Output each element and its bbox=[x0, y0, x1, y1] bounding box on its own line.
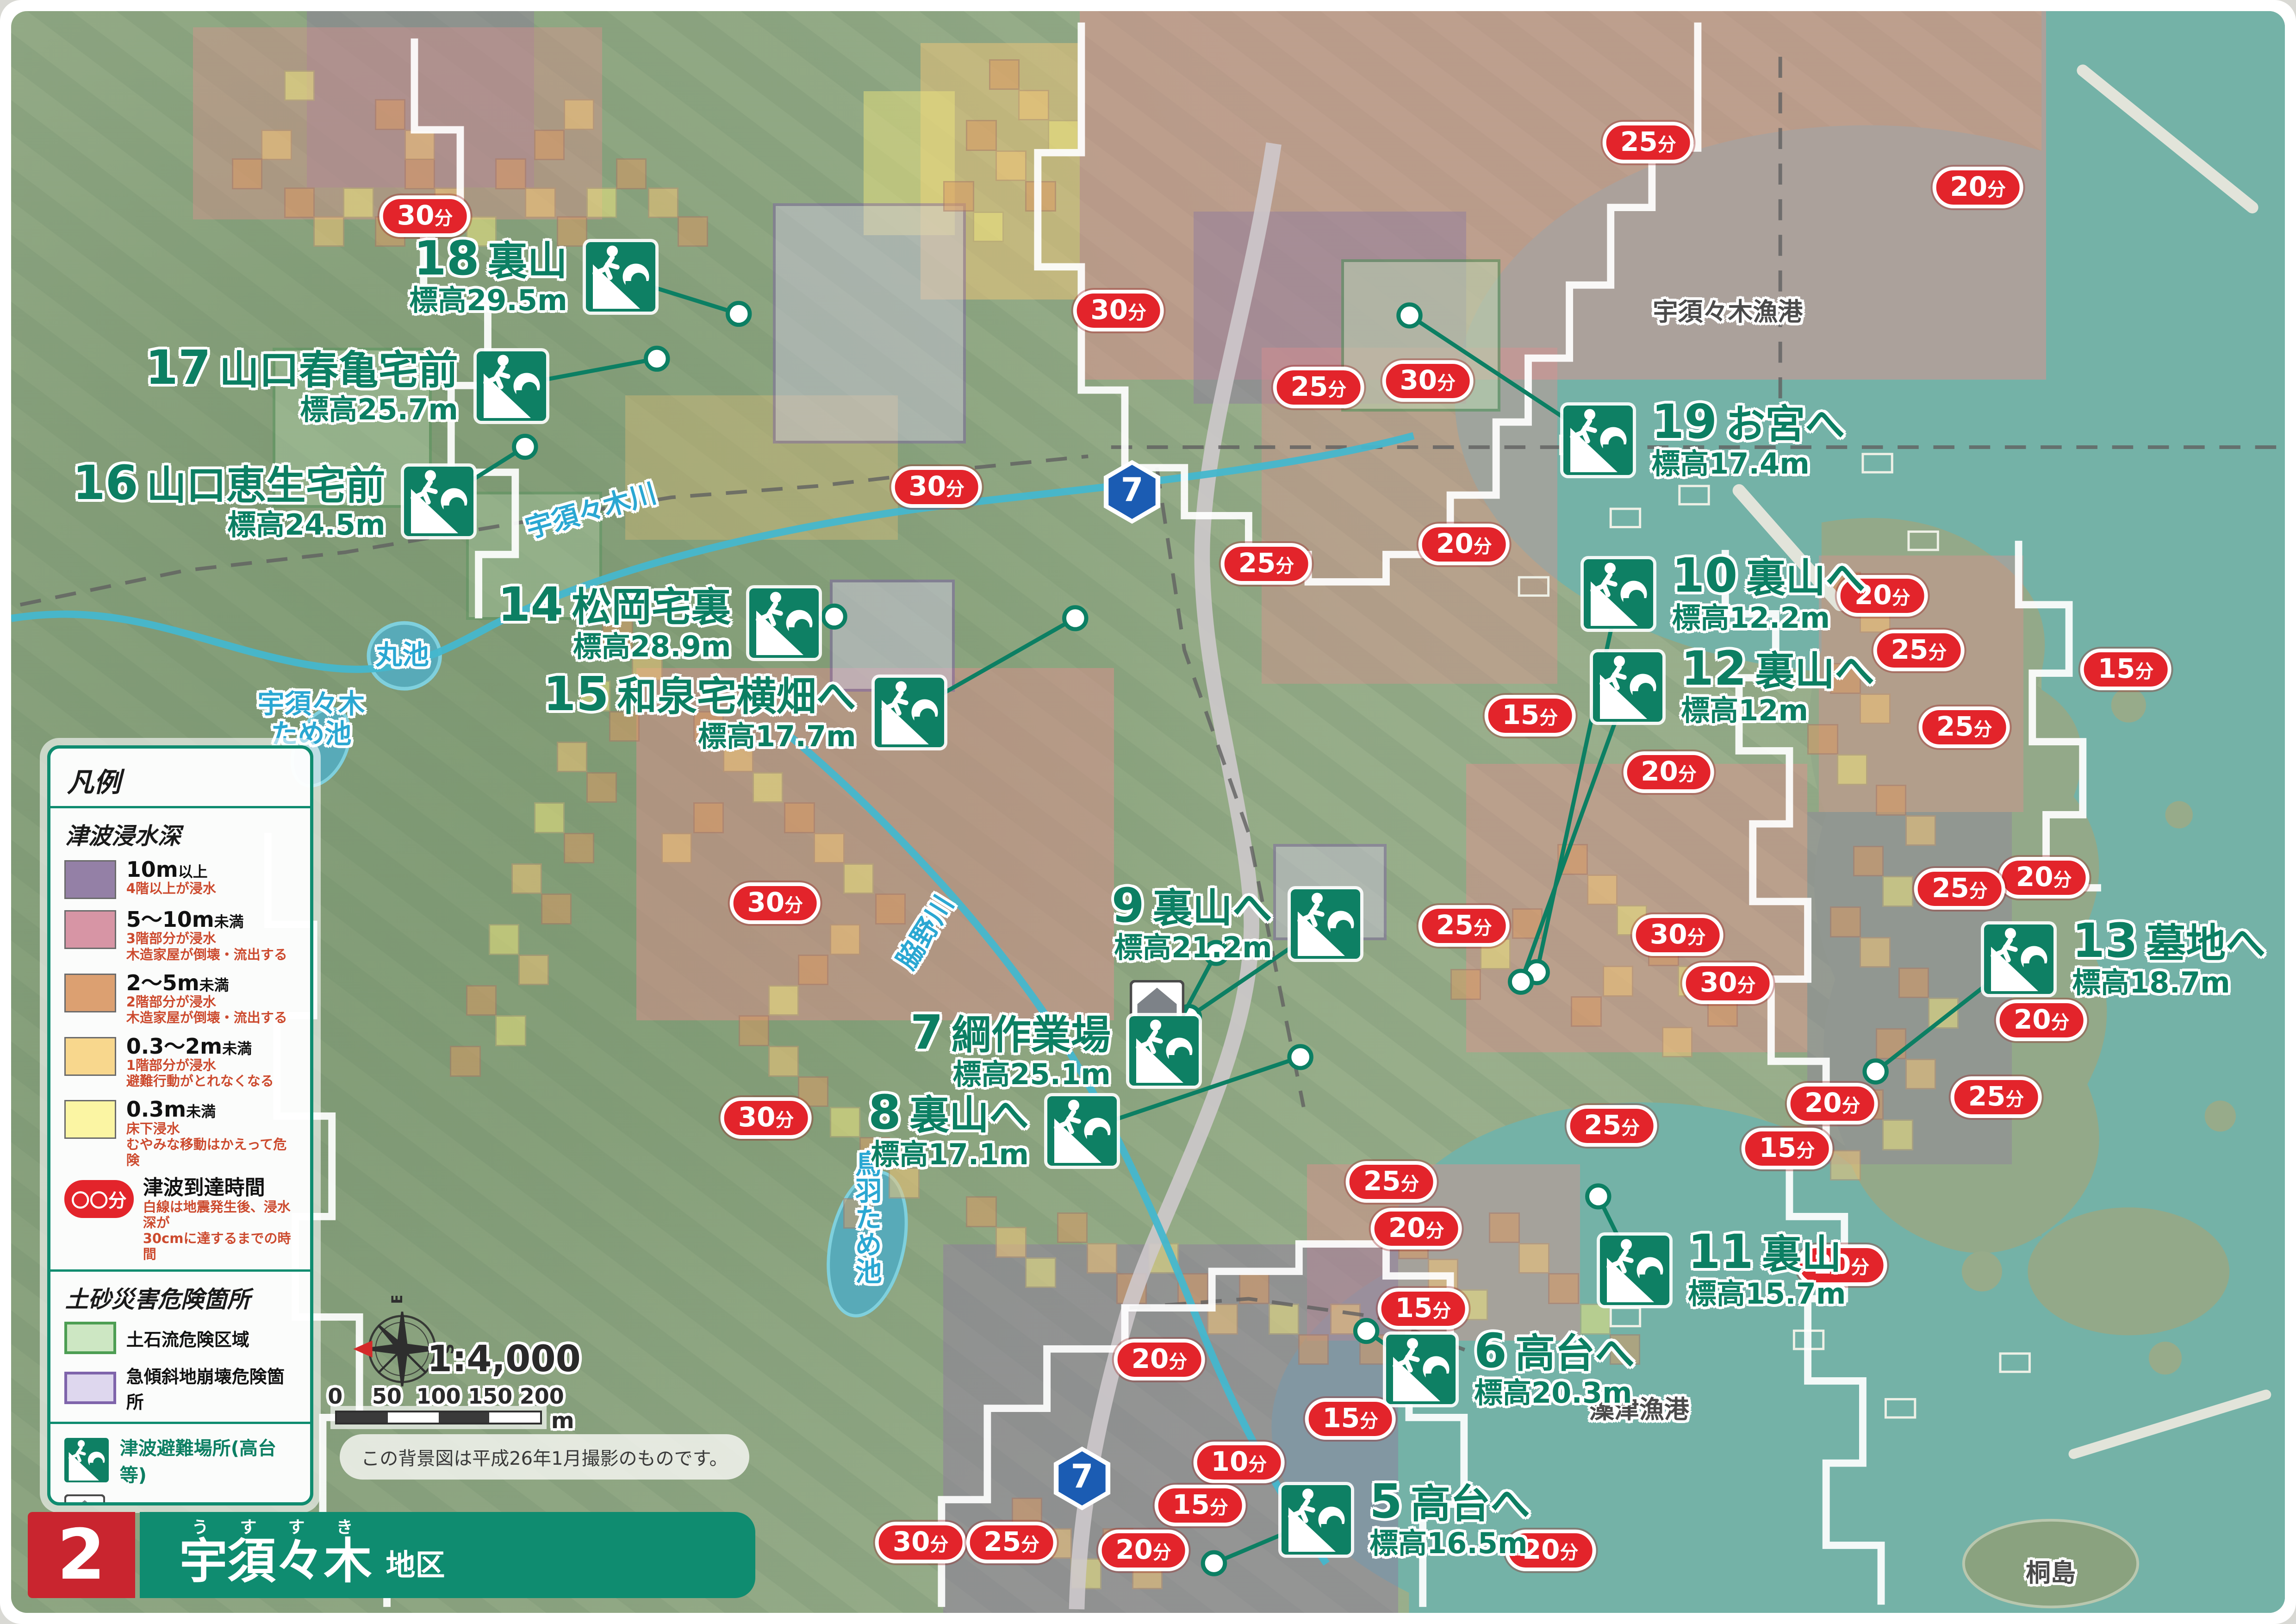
badge-unit: 分 bbox=[1560, 1542, 1578, 1563]
arrival-time-badge: 30分 bbox=[1073, 290, 1164, 331]
badge-minutes: 30 bbox=[738, 1101, 776, 1133]
badge-unit: 分 bbox=[1021, 1534, 1039, 1555]
badge-minutes: 20 bbox=[1115, 1534, 1153, 1565]
scale-bar: 050100150200 m bbox=[335, 1384, 541, 1424]
badge-unit: 分 bbox=[930, 1534, 949, 1555]
badge-minutes: 20 bbox=[1804, 1087, 1842, 1118]
evacuation-point-title: 山口春亀宅前 bbox=[219, 347, 458, 394]
scale-tick: 100 bbox=[417, 1384, 461, 1409]
evacuation-point-name: 9裏山へ bbox=[1112, 881, 1272, 931]
evacuation-point-label: 12裏山へ標高12m bbox=[1681, 644, 1874, 728]
badge-unit: 分 bbox=[1248, 1454, 1267, 1475]
badge-unit: 分 bbox=[1851, 1257, 1869, 1278]
evacuation-point-label: 5高台へ標高16.5m bbox=[1369, 1477, 1530, 1561]
evacuation-point-elevation: 標高28.9m bbox=[498, 630, 731, 664]
depth-desc: 4階以上が浸水 bbox=[126, 881, 216, 896]
evacuation-point-title: 松岡宅裏 bbox=[572, 584, 731, 631]
evacuation-point-number: 12 bbox=[1681, 641, 1747, 696]
badge-minutes: 25 bbox=[1584, 1109, 1621, 1141]
evacuation-point-number: 19 bbox=[1651, 394, 1717, 450]
evacuation-point-label: 15和泉宅横畑へ標高17.7m bbox=[543, 669, 856, 753]
badge-unit: 分 bbox=[1153, 1542, 1171, 1563]
tsunami-evacuation-icon-box bbox=[1282, 1485, 1351, 1555]
evacuation-point-9: 9裏山へ標高21.2m bbox=[1291, 889, 1360, 959]
evacuation-point-number: 8 bbox=[868, 1085, 901, 1140]
arrival-time-badge: 30分 bbox=[891, 466, 982, 508]
legend-panel: 凡例 津波浸水深 10m以上4階以上が浸水5～10m未満3階部分が浸水 木造家屋… bbox=[47, 745, 313, 1505]
evacuation-point-title: 和泉宅横畑へ bbox=[617, 674, 856, 720]
legend-divider-3 bbox=[50, 1422, 310, 1424]
depth-item: 0.3m未満床下浸水 むやみな移動はかえって危険 bbox=[64, 1098, 296, 1168]
badge-minutes: 15 bbox=[1502, 699, 1540, 731]
evacuation-point-label: 10裏山へ標高12.2m bbox=[1672, 551, 1865, 635]
depth-swatch bbox=[64, 1037, 116, 1076]
arrival-time-badge: 25分 bbox=[1419, 905, 1510, 947]
evacuation-point-title: 裏山へ bbox=[1153, 885, 1272, 931]
evacuation-point-title: 裏山へ bbox=[1746, 555, 1865, 601]
tsunami-evacuation-icon-box bbox=[1291, 889, 1360, 959]
evacuation-point-title: 裏山 bbox=[1762, 1231, 1842, 1278]
evacuation-point-10: 10裏山へ標高12.2m bbox=[1584, 559, 1653, 629]
tsunami-evacuation-icon bbox=[1282, 1485, 1351, 1555]
scale-tick: 150 bbox=[468, 1384, 512, 1409]
badge-minutes: 15 bbox=[1172, 1489, 1210, 1520]
scale-ticks: 050100150200 bbox=[335, 1384, 541, 1411]
tsunami-evacuation-icon-box bbox=[1593, 652, 1662, 722]
evacuation-point-name: 5高台へ bbox=[1369, 1477, 1530, 1526]
arrival-time-badge: 15分 bbox=[1742, 1128, 1833, 1169]
evacuation-point-name: 14松岡宅裏 bbox=[498, 580, 731, 630]
evacuation-point-title: 裏山 bbox=[488, 238, 567, 284]
badge-unit: 分 bbox=[1128, 302, 1146, 324]
water-label: 丸池 bbox=[375, 640, 429, 670]
arrival-time-badge: 15分 bbox=[1378, 1288, 1469, 1330]
depth-label: 0.3～2m未満 bbox=[126, 1035, 274, 1057]
evacuation-site-dot bbox=[1587, 1186, 1610, 1207]
depth-swatch bbox=[64, 1100, 116, 1139]
depth-swatch bbox=[64, 860, 116, 899]
evacuation-site-dot bbox=[1399, 305, 1421, 326]
sediment-label: 土石流危険区域 bbox=[126, 1325, 249, 1351]
evacuation-point-name: 6高台へ bbox=[1474, 1326, 1635, 1376]
evacuation-point-label: 8裏山へ標高17.1m bbox=[868, 1088, 1029, 1172]
evacuation-point-title: 山口恵生宅前 bbox=[147, 462, 386, 509]
badge-unit: 分 bbox=[784, 895, 803, 916]
depth-text: 0.3～2m未満1階部分が浸水 避難行動がとれなくなる bbox=[126, 1035, 274, 1089]
sediment-item: 土石流危険区域 bbox=[64, 1322, 296, 1354]
evacuation-point-6: 6高台へ標高20.3m bbox=[1386, 1335, 1456, 1404]
evacuation-point-7: 7綱作業場標高25.1m bbox=[1129, 1016, 1199, 1086]
district-name: 宇須々木うすすき 地区 bbox=[140, 1512, 755, 1598]
hazard-map-page: 7 7 宇須々木川丸池宇須々木 ため池脇野川鳥羽ため池宇須々木漁港藻津漁港桐島3… bbox=[0, 0, 2296, 1624]
evacuation-point-number: 14 bbox=[498, 577, 563, 632]
route-shield: 7 bbox=[1052, 1445, 1112, 1511]
time-item-label: 津波到達時間 bbox=[143, 1177, 296, 1199]
evacuation-point-19: 19お宮へ標高17.4m bbox=[1563, 406, 1633, 475]
district-suffix: 地区 bbox=[386, 1526, 445, 1584]
compass-e: E bbox=[388, 1296, 406, 1304]
route-number: 7 bbox=[1102, 459, 1162, 525]
evacuation-point-number: 7 bbox=[910, 1005, 943, 1060]
tsunami-evacuation-icon-box bbox=[1600, 1236, 1669, 1305]
arrival-time-badge: 25分 bbox=[1566, 1105, 1657, 1147]
evacuation-point-16: 16山口恵生宅前標高24.5m bbox=[404, 467, 473, 536]
district-name-ruby: 宇須々木うすすき bbox=[180, 1518, 372, 1592]
evacuation-site-dot bbox=[1064, 607, 1087, 629]
tsunami-evacuation-icon-box bbox=[1047, 1096, 1117, 1166]
arrival-time-badge: 30分 bbox=[721, 1097, 812, 1139]
depth-desc: 床下浸水 むやみな移動はかえって危険 bbox=[126, 1121, 296, 1168]
badge-minutes: 30 bbox=[747, 887, 784, 918]
evacuation-point-number: 16 bbox=[73, 456, 138, 511]
evacuation-point-12: 12裏山へ標高12m bbox=[1593, 652, 1662, 722]
badge-minutes: 25 bbox=[1968, 1081, 2006, 1112]
badge-unit: 分 bbox=[1210, 1497, 1228, 1518]
depth-swatch bbox=[64, 974, 116, 1012]
depth-item: 5～10m未満3階部分が浸水 木造家屋が倒壊・流出する bbox=[64, 908, 296, 962]
arrival-time-badge: 30分 bbox=[1382, 360, 1473, 402]
evacuation-point-name: 13墓地へ bbox=[2072, 916, 2265, 966]
place-label: 桐島 bbox=[2026, 1559, 2076, 1587]
evacuation-point-elevation: 標高17.7m bbox=[543, 719, 856, 754]
sediment-item: 急傾斜地崩壊危険箇所 bbox=[64, 1362, 296, 1413]
badge-minutes: 25 bbox=[1238, 547, 1276, 579]
evacuation-point-title: 高台へ bbox=[1411, 1481, 1530, 1527]
arrival-time-badge: 20分 bbox=[1996, 999, 2087, 1041]
arrival-time-badge: 15分 bbox=[1155, 1485, 1246, 1526]
tsunami-evacuation-icon-box bbox=[1386, 1335, 1456, 1404]
evacuation-point-title: 裏山へ bbox=[909, 1092, 1029, 1138]
evacuation-point-elevation: 標高17.1m bbox=[868, 1137, 1029, 1172]
badge-minutes: 20 bbox=[1132, 1343, 1169, 1374]
sediment-label: 急傾斜地崩壊危険箇所 bbox=[126, 1362, 296, 1413]
tsunami-evacuation-icon-box bbox=[1984, 924, 2053, 994]
badge-unit: 分 bbox=[1687, 927, 1706, 948]
evacuation-point-label: 6高台へ標高20.3m bbox=[1474, 1326, 1635, 1410]
tsunami-evacuation-icon bbox=[1291, 889, 1360, 959]
arrival-time-badge: 25分 bbox=[1221, 543, 1312, 585]
symbol-items: 津波避難場所(高台等) 防災備蓄倉庫 7県道市道河川・ため池 bbox=[64, 1433, 296, 1505]
badge-unit: 分 bbox=[1474, 918, 1492, 939]
arrival-time-badge: 15分 bbox=[1305, 1398, 1396, 1440]
badge-unit: 分 bbox=[1539, 707, 1558, 729]
arrival-time-badge: 15分 bbox=[1485, 695, 1576, 737]
tsunami-evacuation-icon bbox=[586, 242, 655, 312]
arrival-time-badge: 20分 bbox=[1932, 167, 2023, 208]
badge-minutes: 15 bbox=[2098, 653, 2135, 684]
evacuation-site-dot bbox=[646, 348, 668, 369]
badge-unit: 分 bbox=[435, 208, 453, 229]
scale-tick: 200 bbox=[520, 1384, 564, 1409]
badge-minutes: 10 bbox=[1211, 1446, 1249, 1477]
badge-unit: 分 bbox=[2053, 869, 2072, 891]
evacuation-point-5: 5高台へ標高16.5m bbox=[1282, 1485, 1351, 1555]
badge-minutes: 30 bbox=[1400, 364, 1437, 396]
depth-desc: 2階部分が浸水 木造家屋が倒壊・流出する bbox=[126, 994, 287, 1025]
depth-label: 0.3m未満 bbox=[126, 1098, 296, 1120]
badge-unit: 分 bbox=[1426, 1220, 1444, 1242]
tsunami-evacuation-icon bbox=[1600, 1236, 1669, 1305]
evacuation-point-title: 高台へ bbox=[1515, 1330, 1635, 1377]
depth-label: 10m以上 bbox=[126, 858, 216, 881]
evacuation-point-name: 15和泉宅横畑へ bbox=[543, 669, 856, 719]
disaster-storage-icon bbox=[64, 1494, 105, 1505]
storage-symbol bbox=[64, 1494, 105, 1505]
badge-unit: 分 bbox=[1474, 536, 1492, 557]
badge-minutes: 15 bbox=[1322, 1402, 1360, 1434]
evacuation-point-14: 14松岡宅裏標高28.9m bbox=[749, 588, 819, 658]
tsunami-evacuation-icon bbox=[1584, 559, 1653, 629]
evacuation-point-elevation: 標高24.5m bbox=[73, 508, 386, 542]
badge-unit: 分 bbox=[1987, 179, 2006, 200]
badge-minutes: 20 bbox=[2014, 1004, 2051, 1035]
evacuation-point-elevation: 標高29.5m bbox=[409, 283, 567, 318]
badge-minutes: 25 bbox=[1891, 634, 1929, 665]
tsunami-evacuation-icon bbox=[1984, 924, 2053, 994]
evacuation-point-8: 8裏山へ標高17.1m bbox=[1047, 1096, 1117, 1166]
evacuation-point-title: 裏山へ bbox=[1755, 648, 1874, 694]
tsunami-evacuation-icon-box bbox=[1563, 406, 1633, 475]
evacuation-point-name: 19お宮へ bbox=[1651, 397, 1845, 447]
tsunami-evacuation-icon-box bbox=[477, 351, 546, 421]
time-item-desc: 白線は地震発生後、浸水深が 30cmに達するまでの時間 bbox=[143, 1199, 296, 1262]
tsunami-evacuation-symbol bbox=[64, 1438, 109, 1482]
arrival-time-badge: 25分 bbox=[1603, 122, 1694, 163]
legend-divider bbox=[50, 806, 310, 808]
symbol-item: 津波避難場所(高台等) bbox=[64, 1433, 296, 1487]
depth-section-title: 津波浸水深 bbox=[65, 818, 296, 851]
evacuation-site-dot bbox=[1865, 1061, 1887, 1082]
evacuation-site-dot bbox=[728, 303, 750, 325]
badge-unit: 分 bbox=[1621, 1118, 1640, 1139]
water-label: 宇須々木 ため池 bbox=[258, 689, 365, 749]
badge-unit: 分 bbox=[1737, 975, 1756, 996]
badge-unit: 分 bbox=[2135, 661, 2153, 682]
arrival-time-item: 〇〇分 津波到達時間 白線は地震発生後、浸水深が 30cmに達するまでの時間 bbox=[64, 1177, 296, 1262]
badge-minutes: 25 bbox=[1291, 371, 1328, 402]
arrival-time-badge: 25分 bbox=[1919, 706, 2010, 748]
evacuation-site-dot bbox=[1510, 971, 1532, 993]
arrival-time-badge: 20分 bbox=[1114, 1339, 1205, 1380]
depth-label: 2～5m未満 bbox=[126, 972, 287, 994]
tsunami-evacuation-icon bbox=[875, 678, 944, 747]
depth-text: 2～5m未満2階部分が浸水 木造家屋が倒壊・流出する bbox=[126, 972, 287, 1026]
tsunami-evacuation-icon bbox=[1563, 406, 1633, 475]
depth-desc: 1階部分が浸水 避難行動がとれなくなる bbox=[126, 1057, 274, 1089]
badge-unit: 分 bbox=[1169, 1351, 1187, 1373]
arrival-time-badge: 30分 bbox=[1632, 914, 1724, 956]
badge-unit: 分 bbox=[1276, 556, 1294, 577]
arrival-time-badge: 30分 bbox=[1682, 962, 1773, 1004]
badge-unit: 分 bbox=[775, 1110, 794, 1131]
scale-tick: 0 bbox=[328, 1384, 342, 1409]
depth-item: 2～5m未満2階部分が浸水 木造家屋が倒壊・流出する bbox=[64, 972, 296, 1026]
badge-unit: 分 bbox=[1437, 373, 1456, 394]
arrival-time-badge: 25分 bbox=[1951, 1076, 2042, 1118]
badge-unit: 分 bbox=[1658, 134, 1676, 156]
depth-label: 5～10m未満 bbox=[126, 908, 287, 931]
evacuation-point-name: 7綱作業場 bbox=[910, 1008, 1111, 1057]
symbol-label: 津波避難場所(高台等) bbox=[120, 1433, 296, 1487]
badge-unit: 分 bbox=[1796, 1140, 1815, 1162]
evacuation-point-number: 9 bbox=[1112, 878, 1145, 933]
evacuation-point-label: 9裏山へ標高21.2m bbox=[1112, 881, 1272, 965]
tsunami-evacuation-icon-box bbox=[749, 588, 819, 658]
photo-date-note: この背景図は平成26年1月撮影のものです。 bbox=[340, 1434, 749, 1480]
route-number: 7 bbox=[1052, 1445, 1112, 1511]
tsunami-evacuation-icon bbox=[1129, 1016, 1199, 1086]
legend-divider-2 bbox=[50, 1269, 310, 1272]
depth-swatch bbox=[64, 910, 116, 949]
arrival-time-badge: 20分 bbox=[1623, 751, 1714, 793]
badge-unit: 分 bbox=[946, 479, 964, 500]
evacuation-point-number: 15 bbox=[543, 667, 609, 722]
badge-unit: 分 bbox=[1360, 1411, 1378, 1432]
evacuation-point-elevation: 標高17.4m bbox=[1651, 447, 1845, 481]
district-title-bar: 2 宇須々木うすすき 地区 bbox=[28, 1512, 755, 1598]
evacuation-point-title: お宮へ bbox=[1725, 401, 1845, 448]
badge-minutes: 30 bbox=[908, 470, 946, 502]
scale-bar-segments bbox=[335, 1411, 541, 1424]
tsunami-evacuation-icon bbox=[1386, 1335, 1456, 1404]
prefectural-road bbox=[1077, 144, 1274, 1609]
arrival-time-badge: 30分 bbox=[875, 1522, 966, 1563]
depth-item: 10m以上4階以上が浸水 bbox=[64, 858, 296, 899]
symbol-item: 防災備蓄倉庫 bbox=[64, 1494, 296, 1505]
badge-unit: 分 bbox=[1678, 764, 1697, 785]
badge-unit: 分 bbox=[1974, 719, 1992, 740]
badge-minutes: 25 bbox=[1620, 126, 1658, 157]
evacuation-point-number: 11 bbox=[1688, 1224, 1754, 1280]
evacuation-point-elevation: 標高21.2m bbox=[1112, 931, 1272, 965]
arrival-time-badge: 10分 bbox=[1194, 1442, 1285, 1483]
evacuation-point-label: 19お宮へ標高17.4m bbox=[1651, 397, 1845, 481]
badge-minutes: 25 bbox=[983, 1526, 1021, 1557]
tsunami-evacuation-icon-box bbox=[404, 467, 473, 536]
tsunami-evacuation-icon-box bbox=[1584, 559, 1653, 629]
evacuation-point-label: 17山口春亀宅前標高25.7m bbox=[145, 343, 458, 427]
badge-unit: 分 bbox=[2005, 1089, 2024, 1110]
evacuation-point-name: 16山口恵生宅前 bbox=[73, 458, 386, 508]
tsunami-evacuation-icon bbox=[1593, 652, 1662, 722]
tsunami-evacuation-icon-box bbox=[586, 242, 655, 312]
route-shield: 7 bbox=[1102, 459, 1162, 525]
evacuation-point-elevation: 標高20.3m bbox=[1474, 1376, 1635, 1410]
evacuation-point-label: 14松岡宅裏標高28.9m bbox=[498, 580, 731, 664]
badge-unit: 分 bbox=[1432, 1300, 1451, 1322]
north-arrow bbox=[353, 1341, 372, 1358]
depth-text: 0.3m未満床下浸水 むやみな移動はかえって危険 bbox=[126, 1098, 296, 1168]
evacuation-point-number: 10 bbox=[1672, 548, 1737, 603]
time-badge-sample: 〇〇分 bbox=[64, 1180, 134, 1218]
symbol-label: 防災備蓄倉庫 bbox=[116, 1502, 222, 1505]
sediment-swatch bbox=[64, 1322, 116, 1354]
badge-minutes: 20 bbox=[2016, 861, 2053, 893]
badge-minutes: 30 bbox=[1650, 918, 1687, 950]
arrival-time-badge: 30分 bbox=[729, 882, 821, 924]
badge-unit: 分 bbox=[2051, 1012, 2070, 1033]
evacuation-point-title: 綱作業場 bbox=[952, 1012, 1111, 1058]
evacuation-point-number: 6 bbox=[1474, 1324, 1507, 1379]
badge-minutes: 20 bbox=[1436, 528, 1474, 559]
tsunami-evacuation-icon bbox=[477, 351, 546, 421]
evacuation-point-label: 16山口恵生宅前標高24.5m bbox=[73, 458, 386, 542]
evacuation-point-number: 5 bbox=[1369, 1474, 1402, 1529]
badge-minutes: 25 bbox=[1932, 872, 1969, 904]
scale-unit: m bbox=[551, 1408, 574, 1434]
tsunami-evacuation-icon bbox=[404, 467, 473, 536]
sediment-swatch bbox=[64, 1372, 116, 1404]
evacuation-point-label: 7綱作業場標高25.1m bbox=[910, 1008, 1111, 1092]
badge-minutes: 15 bbox=[1759, 1132, 1797, 1163]
badge-minutes: 30 bbox=[893, 1526, 930, 1557]
badge-minutes: 20 bbox=[1950, 171, 1987, 202]
evacuation-point-label: 13墓地へ標高18.7m bbox=[2072, 916, 2265, 1000]
badge-minutes: 30 bbox=[1090, 294, 1128, 325]
evacuation-site-dot bbox=[1289, 1046, 1312, 1068]
evacuation-point-name: 12裏山へ bbox=[1681, 644, 1874, 693]
evacuation-point-number: 13 bbox=[2072, 913, 2138, 968]
district-number: 2 bbox=[28, 1512, 135, 1598]
evacuation-point-13: 13墓地へ標高18.7m bbox=[1984, 924, 2053, 994]
evacuation-point-15: 15和泉宅横畑へ標高17.7m bbox=[875, 678, 944, 747]
evacuation-point-label: 11裏山標高15.7m bbox=[1688, 1227, 1846, 1311]
depth-items: 10m以上4階以上が浸水5～10m未満3階部分が浸水 木造家屋が倒壊・流出する2… bbox=[64, 858, 296, 1168]
evacuation-site-dot bbox=[1355, 1320, 1377, 1342]
tsunami-evacuation-icon-box bbox=[875, 678, 944, 747]
arrival-time-badge: 25分 bbox=[1873, 630, 1965, 671]
evacuation-point-11: 11裏山標高15.7m bbox=[1600, 1236, 1669, 1305]
badge-minutes: 20 bbox=[1388, 1212, 1426, 1243]
depth-item: 0.3～2m未満1階部分が浸水 避難行動がとれなくなる bbox=[64, 1035, 296, 1089]
tsunami-evacuation-icon bbox=[749, 588, 819, 658]
tsunami-evacuation-icon bbox=[64, 1438, 109, 1482]
depth-text: 5～10m未満3階部分が浸水 木造家屋が倒壊・流出する bbox=[126, 908, 287, 962]
depth-text: 10m以上4階以上が浸水 bbox=[126, 858, 216, 897]
evacuation-point-elevation: 標高18.7m bbox=[2072, 966, 2265, 1000]
sediment-items: 土石流危険区域急傾斜地崩壊危険箇所 bbox=[64, 1322, 296, 1413]
evacuation-point-elevation: 標高25.7m bbox=[145, 393, 458, 427]
evacuation-point-name: 17山口春亀宅前 bbox=[145, 343, 458, 393]
evacuation-point-name: 10裏山へ bbox=[1672, 551, 1865, 600]
arrival-time-badge: 25分 bbox=[1914, 868, 2005, 910]
arrival-time-badge: 20分 bbox=[1419, 524, 1510, 565]
evacuation-point-elevation: 標高12.2m bbox=[1672, 601, 1865, 635]
evacuation-site-dot bbox=[823, 606, 846, 627]
badge-minutes: 25 bbox=[1936, 711, 1974, 742]
badge-unit: 分 bbox=[1928, 642, 1947, 663]
arrival-time-badge: 25分 bbox=[1346, 1161, 1437, 1203]
evacuation-point-name: 11裏山 bbox=[1688, 1227, 1846, 1277]
sediment-section-title: 土砂災害危険箇所 bbox=[65, 1281, 296, 1314]
evacuation-site-dot bbox=[1203, 1552, 1225, 1574]
evacuation-point-title: 墓地へ bbox=[2146, 920, 2265, 967]
tsunami-evacuation-icon bbox=[1047, 1096, 1117, 1166]
arrival-time-badge: 20分 bbox=[1371, 1208, 1462, 1249]
evacuation-point-label: 18裏山標高29.5m bbox=[409, 234, 567, 318]
arrival-time-badge: 25分 bbox=[966, 1522, 1057, 1563]
arrival-time-badge: 20分 bbox=[1787, 1083, 1878, 1124]
evacuation-point-elevation: 標高16.5m bbox=[1369, 1526, 1530, 1561]
arrival-time-badge: 20分 bbox=[1998, 857, 2090, 899]
badge-minutes: 25 bbox=[1436, 909, 1474, 941]
evacuation-point-name: 18裏山 bbox=[409, 234, 567, 283]
badge-unit: 分 bbox=[1842, 1095, 1860, 1117]
evacuation-point-17: 17山口春亀宅前標高25.7m bbox=[477, 351, 546, 421]
badge-minutes: 25 bbox=[1363, 1165, 1401, 1197]
tsunami-evacuation-icon-box bbox=[1129, 1016, 1199, 1086]
badge-unit: 分 bbox=[1892, 587, 1910, 609]
